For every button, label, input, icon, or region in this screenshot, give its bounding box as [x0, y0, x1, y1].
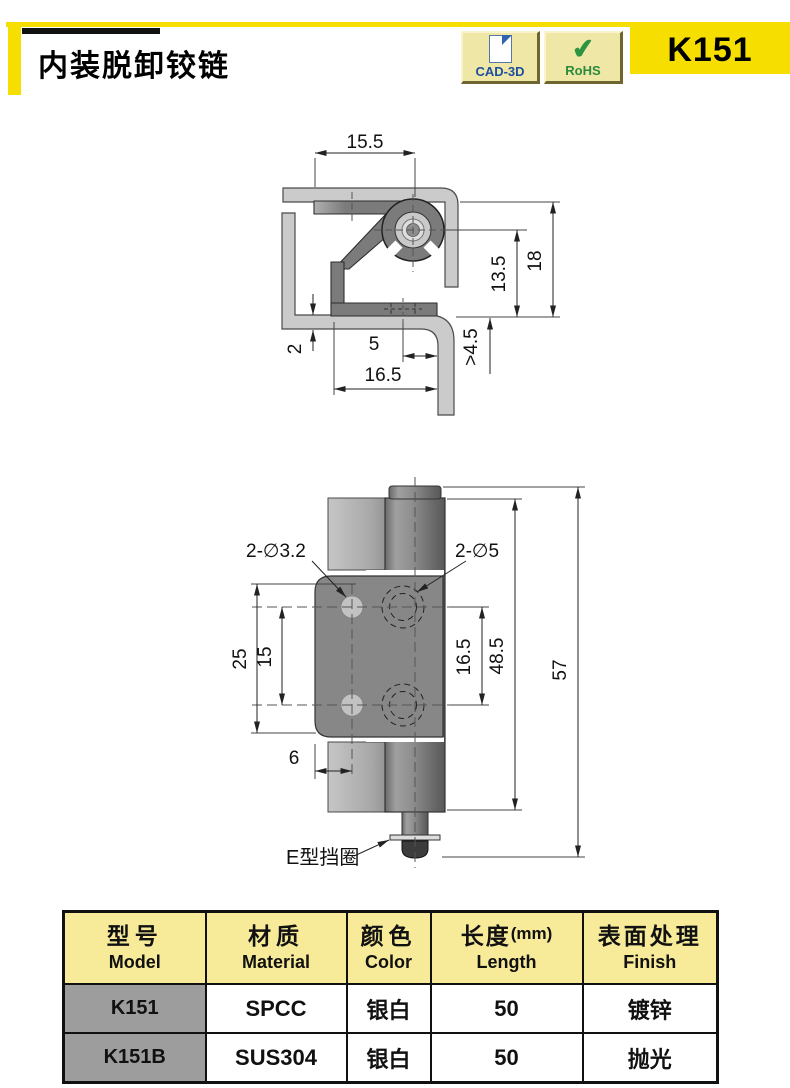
- part-number: K151: [667, 31, 752, 70]
- col-model-en: Model: [65, 950, 205, 974]
- dim-min-clearance: >4.5: [461, 328, 482, 366]
- cell-material: SUS304: [206, 1033, 347, 1083]
- dim-panel-thickness: 2: [285, 344, 306, 355]
- catalog-page: 内装脱卸铰链 CAD-3D ✔ RoHS K151: [0, 0, 790, 1088]
- col-material-zh: 材质: [207, 922, 346, 950]
- dim-outer-spacing: 25: [230, 648, 251, 669]
- front-view-drawing: 2-∅3.2 2-∅5 25 15 16.5 48.5 57 6 E型挡圈: [226, 455, 590, 883]
- part-number-block: K151: [630, 27, 790, 74]
- col-model-zh: 型号: [65, 922, 205, 950]
- dim-leaf-height: 48.5: [487, 638, 508, 675]
- spec-table: 型号 Model 材质 Material 颜色 Color 长度 (mm) Le…: [62, 910, 719, 1084]
- badge-group: CAD-3D ✔ RoHS: [461, 31, 623, 84]
- table-row: K151B SUS304 银白 50 抛光: [64, 1033, 718, 1083]
- cad-file-icon: [489, 35, 512, 63]
- cell-finish: 镀锌: [583, 984, 718, 1033]
- col-model: 型号 Model: [64, 912, 206, 985]
- col-material-en: Material: [207, 950, 346, 974]
- col-length: 长度 (mm) Length: [431, 912, 583, 985]
- page-title: 内装脱卸铰链: [38, 41, 230, 85]
- hinge-body: [315, 486, 445, 858]
- col-color: 颜色 Color: [347, 912, 431, 985]
- dim-pin-height: 13.5: [489, 256, 510, 293]
- checkmark-icon: ✔: [570, 35, 595, 63]
- cross-section-drawing: 15.5 18 13.5 >4.5 2 5 16.5: [255, 120, 585, 440]
- header-black-rule: [22, 28, 160, 34]
- cell-material: SPCC: [206, 984, 347, 1033]
- cad-3d-badge[interactable]: CAD-3D: [461, 31, 540, 84]
- cell-model: K151B: [64, 1033, 206, 1083]
- cell-color: 银白: [347, 984, 431, 1033]
- header-left-stripe: [8, 22, 21, 95]
- dim-hole-edge-offset: 6: [289, 748, 300, 769]
- col-finish: 表面处理 Finish: [583, 912, 718, 985]
- cell-color: 银白: [347, 1033, 431, 1083]
- dim-small-holes: 2-∅3.2: [246, 541, 306, 562]
- rohs-badge[interactable]: ✔ RoHS: [544, 31, 623, 84]
- dim-large-holes: 2-∅5: [455, 541, 499, 562]
- dim-total-height: 57: [550, 659, 571, 680]
- dim-total-height: 18: [525, 250, 546, 271]
- mounting-leaf: [315, 576, 443, 737]
- e-ring-label: E型挡圈: [286, 846, 359, 869]
- dim-total-width: 16.5: [365, 365, 402, 386]
- col-finish-en: Finish: [584, 950, 717, 974]
- table-header-row: 型号 Model 材质 Material 颜色 Color 长度 (mm) Le…: [64, 912, 718, 985]
- col-finish-zh: 表面处理: [584, 922, 717, 950]
- back-leaf-upper: [328, 498, 390, 570]
- col-length-zh: 长度: [461, 922, 511, 950]
- rohs-label: RoHS: [565, 63, 600, 78]
- cad-3d-label: CAD-3D: [475, 64, 524, 79]
- dim-small-hole-spacing: 15: [255, 646, 276, 667]
- dim-edge-offset: 5: [369, 334, 380, 355]
- col-length-en: Length: [432, 950, 582, 974]
- table-row: K151 SPCC 银白 50 镀锌: [64, 984, 718, 1033]
- back-leaf-lower: [328, 742, 390, 812]
- cell-length: 50: [431, 984, 583, 1033]
- dim-large-hole-spacing: 16.5: [454, 639, 475, 676]
- col-material: 材质 Material: [206, 912, 347, 985]
- cell-model: K151: [64, 984, 206, 1033]
- col-color-en: Color: [348, 950, 430, 974]
- dim-width-top: 15.5: [347, 132, 384, 153]
- col-color-zh: 颜色: [348, 922, 430, 950]
- cell-length: 50: [431, 1033, 583, 1083]
- col-length-unit: (mm): [511, 924, 553, 944]
- cell-finish: 抛光: [583, 1033, 718, 1083]
